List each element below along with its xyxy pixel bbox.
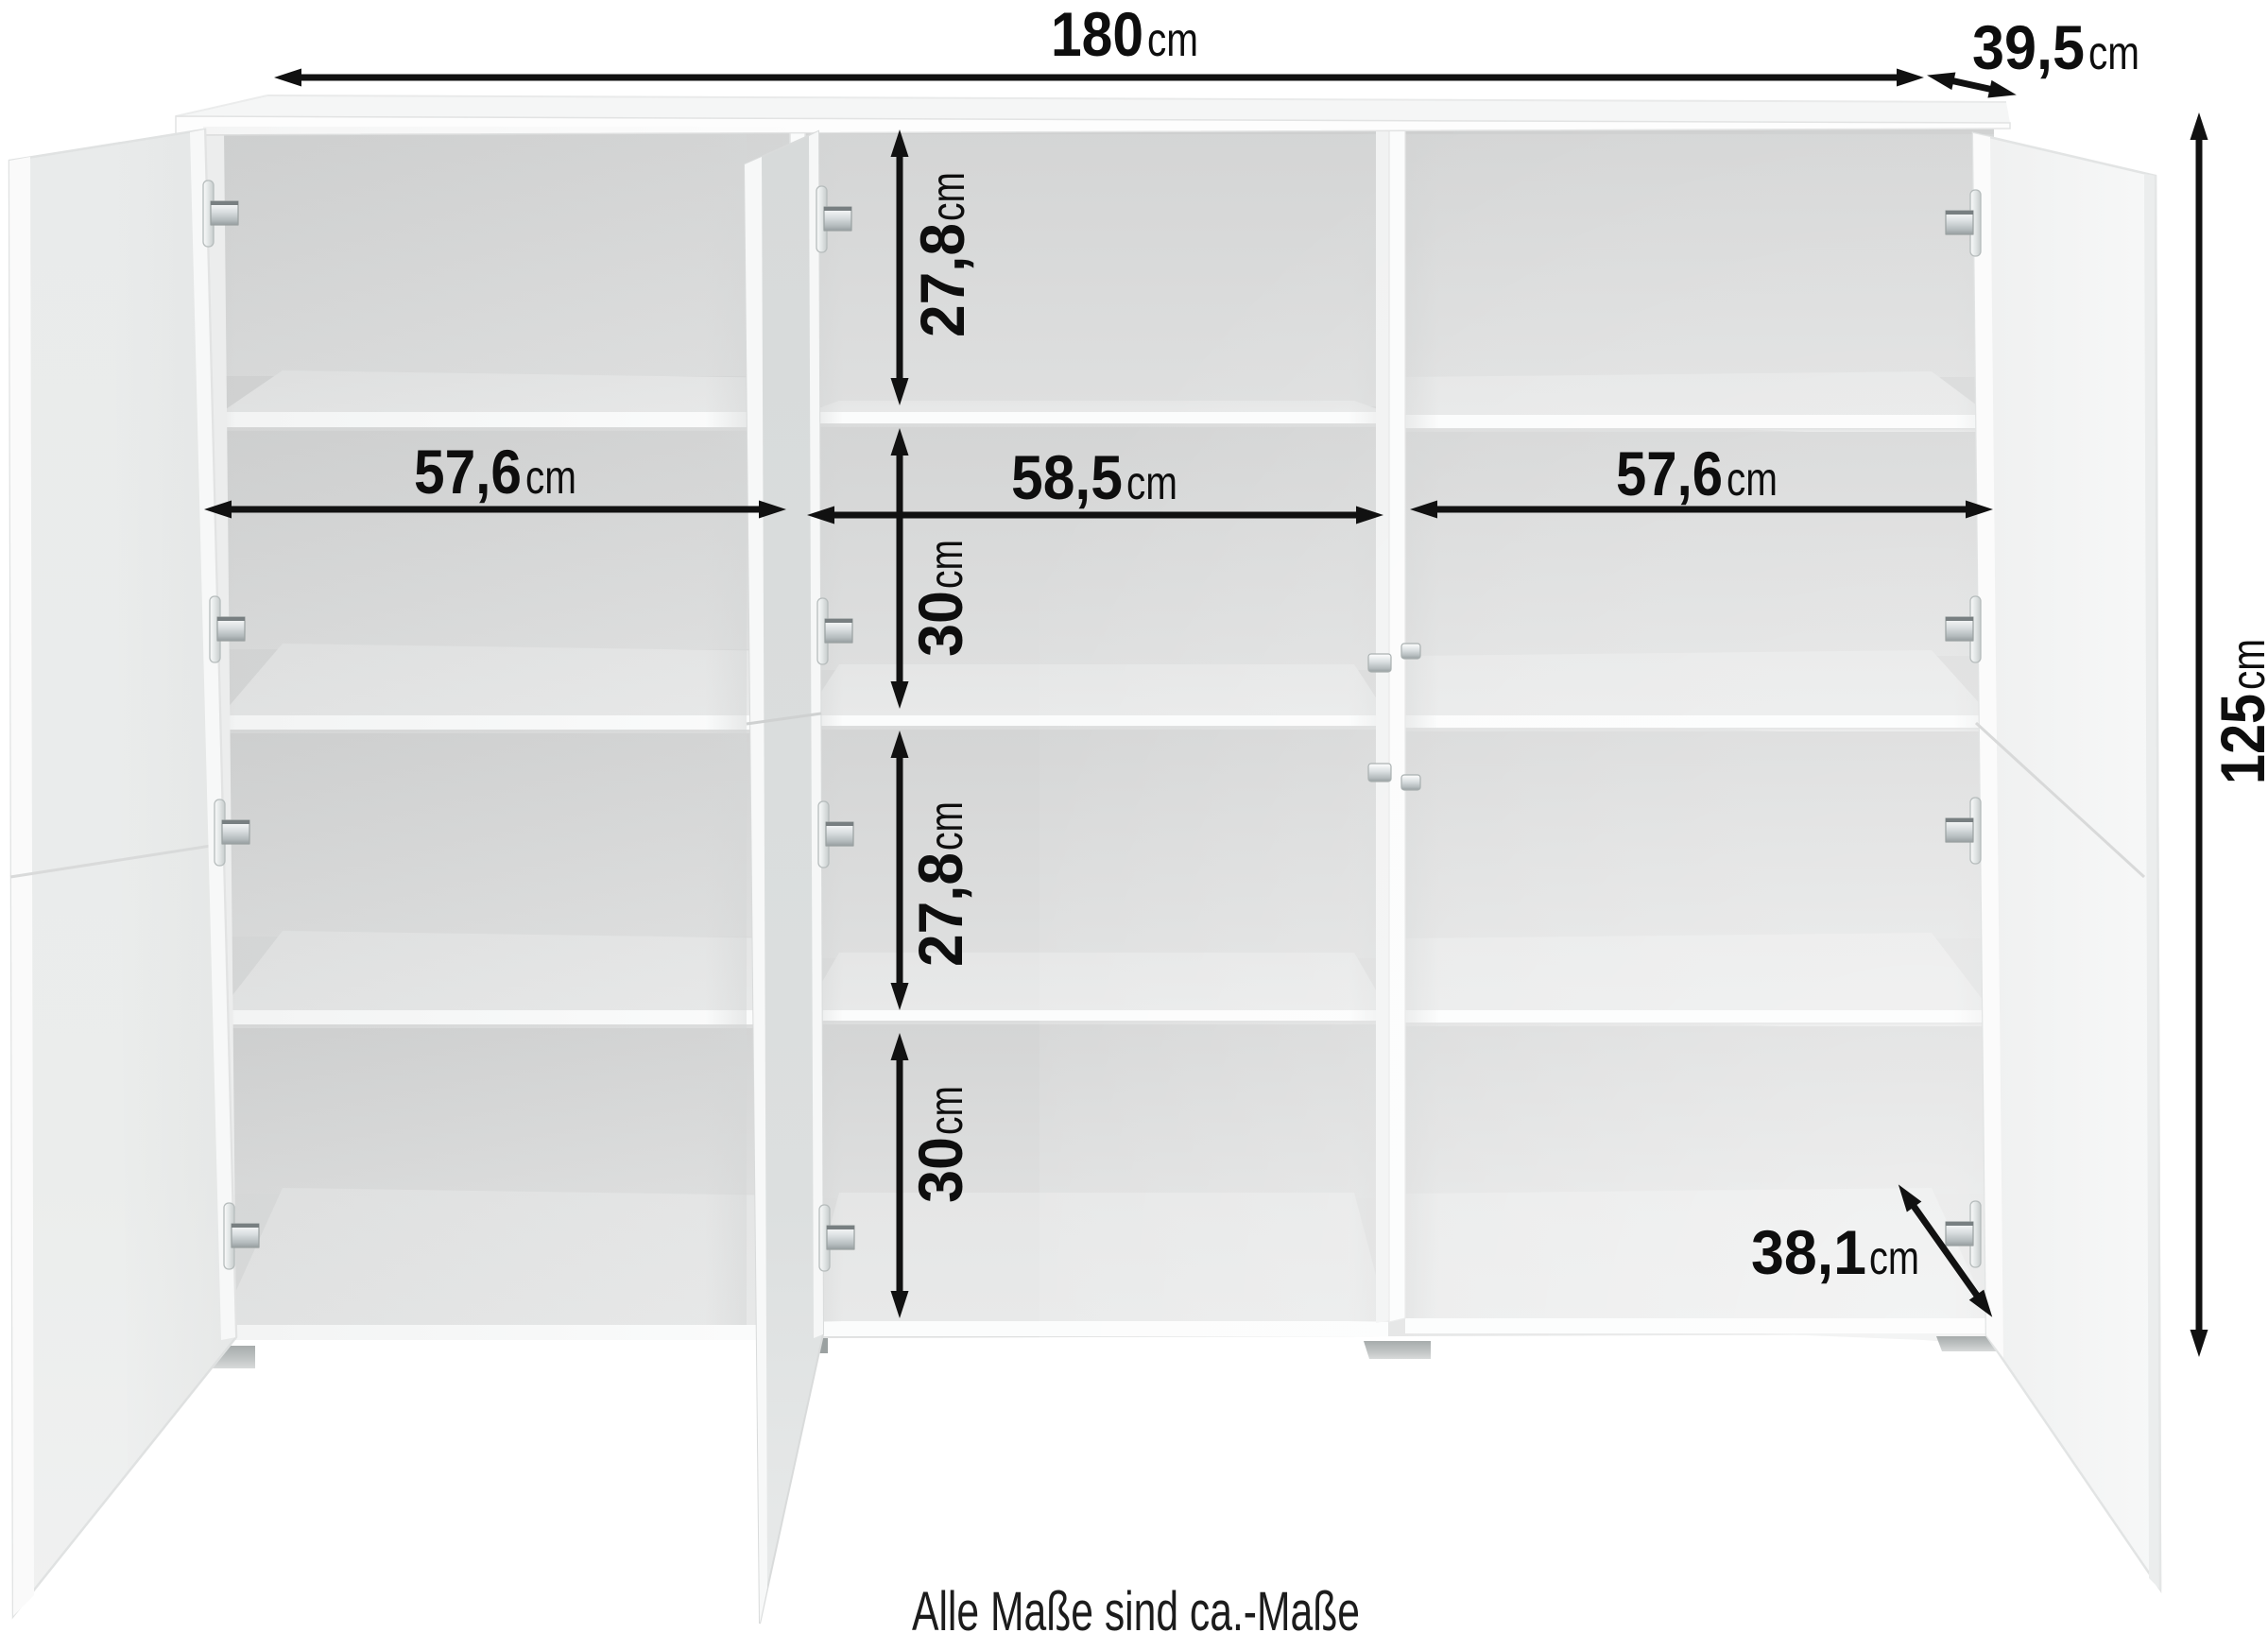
svg-text:cm: cm (1147, 13, 1198, 66)
svg-text:cm: cm (921, 172, 974, 221)
svg-text:30: 30 (905, 1137, 975, 1203)
svg-text:125: 125 (2208, 694, 2268, 784)
svg-text:cm: cm (1126, 456, 1177, 509)
svg-text:Alle Maße sind ca.-Maße: Alle Maße sind ca.-Maße (912, 1581, 1360, 1633)
svg-text:cm: cm (1727, 453, 1778, 506)
svg-text:57,6: 57,6 (414, 437, 522, 507)
svg-text:39,5: 39,5 (1972, 12, 2085, 82)
svg-text:27,8: 27,8 (905, 852, 975, 967)
svg-text:30: 30 (905, 591, 975, 657)
svg-text:cm: cm (525, 451, 576, 504)
svg-text:cm: cm (919, 540, 972, 589)
svg-text:57,6: 57,6 (1616, 438, 1723, 508)
svg-text:27,8: 27,8 (907, 223, 977, 337)
svg-text:cm: cm (1869, 1231, 1919, 1284)
svg-text:cm: cm (919, 801, 972, 851)
svg-text:180: 180 (1051, 0, 1143, 69)
svg-text:cm: cm (2088, 26, 2139, 79)
svg-text:cm: cm (919, 1086, 972, 1135)
svg-text:58,5: 58,5 (1011, 442, 1123, 512)
svg-text:cm: cm (2222, 639, 2268, 690)
svg-text:38,1: 38,1 (1751, 1217, 1866, 1287)
